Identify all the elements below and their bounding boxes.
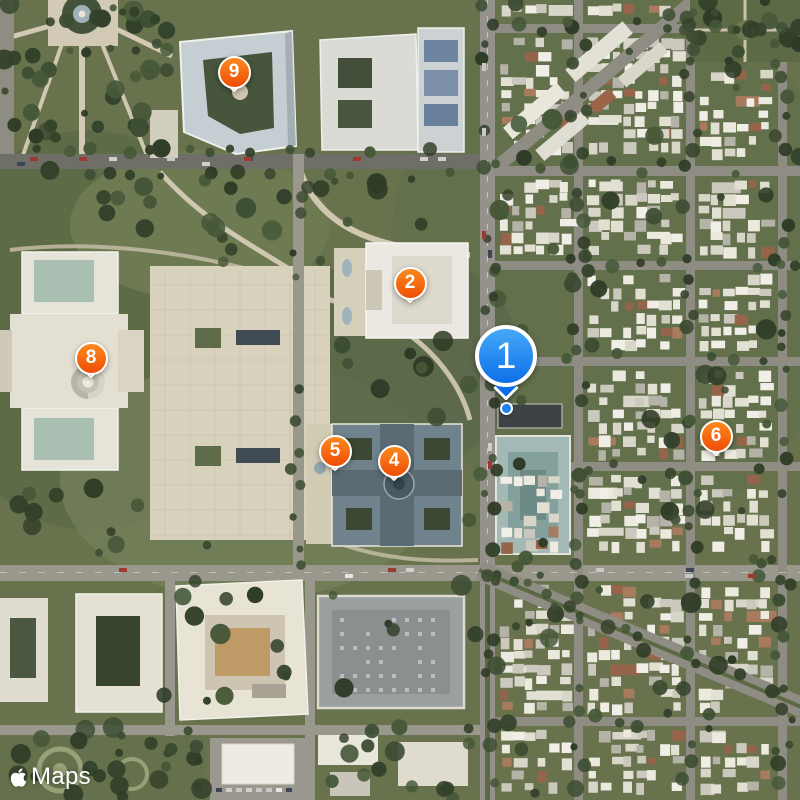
pin-bubble: 9 bbox=[218, 56, 251, 89]
pin-number-label: 1 bbox=[496, 337, 517, 374]
pin-number-label: 4 bbox=[389, 451, 400, 470]
pin-number-label: 6 bbox=[711, 426, 722, 445]
satellite-imagery bbox=[0, 0, 800, 800]
pin-bubble: 8 bbox=[75, 342, 108, 375]
map-canvas[interactable]: 1245689 Maps bbox=[0, 0, 800, 800]
pin-number-label: 5 bbox=[330, 441, 341, 460]
pin-bubble: 6 bbox=[700, 420, 733, 453]
pin-bubble: 4 bbox=[378, 445, 411, 478]
apple-logo-icon bbox=[10, 767, 27, 788]
maps-watermark: Maps bbox=[10, 763, 91, 791]
pin-number-label: 2 bbox=[405, 273, 416, 292]
pin-bubble: 5 bbox=[319, 435, 352, 468]
location-dot[interactable] bbox=[500, 402, 513, 415]
pin-bubble: 2 bbox=[394, 267, 427, 300]
pin-number-label: 8 bbox=[86, 348, 97, 367]
pin-number-label: 9 bbox=[229, 62, 240, 81]
pin-bubble: 1 bbox=[475, 325, 537, 387]
maps-watermark-label: Maps bbox=[31, 763, 91, 791]
